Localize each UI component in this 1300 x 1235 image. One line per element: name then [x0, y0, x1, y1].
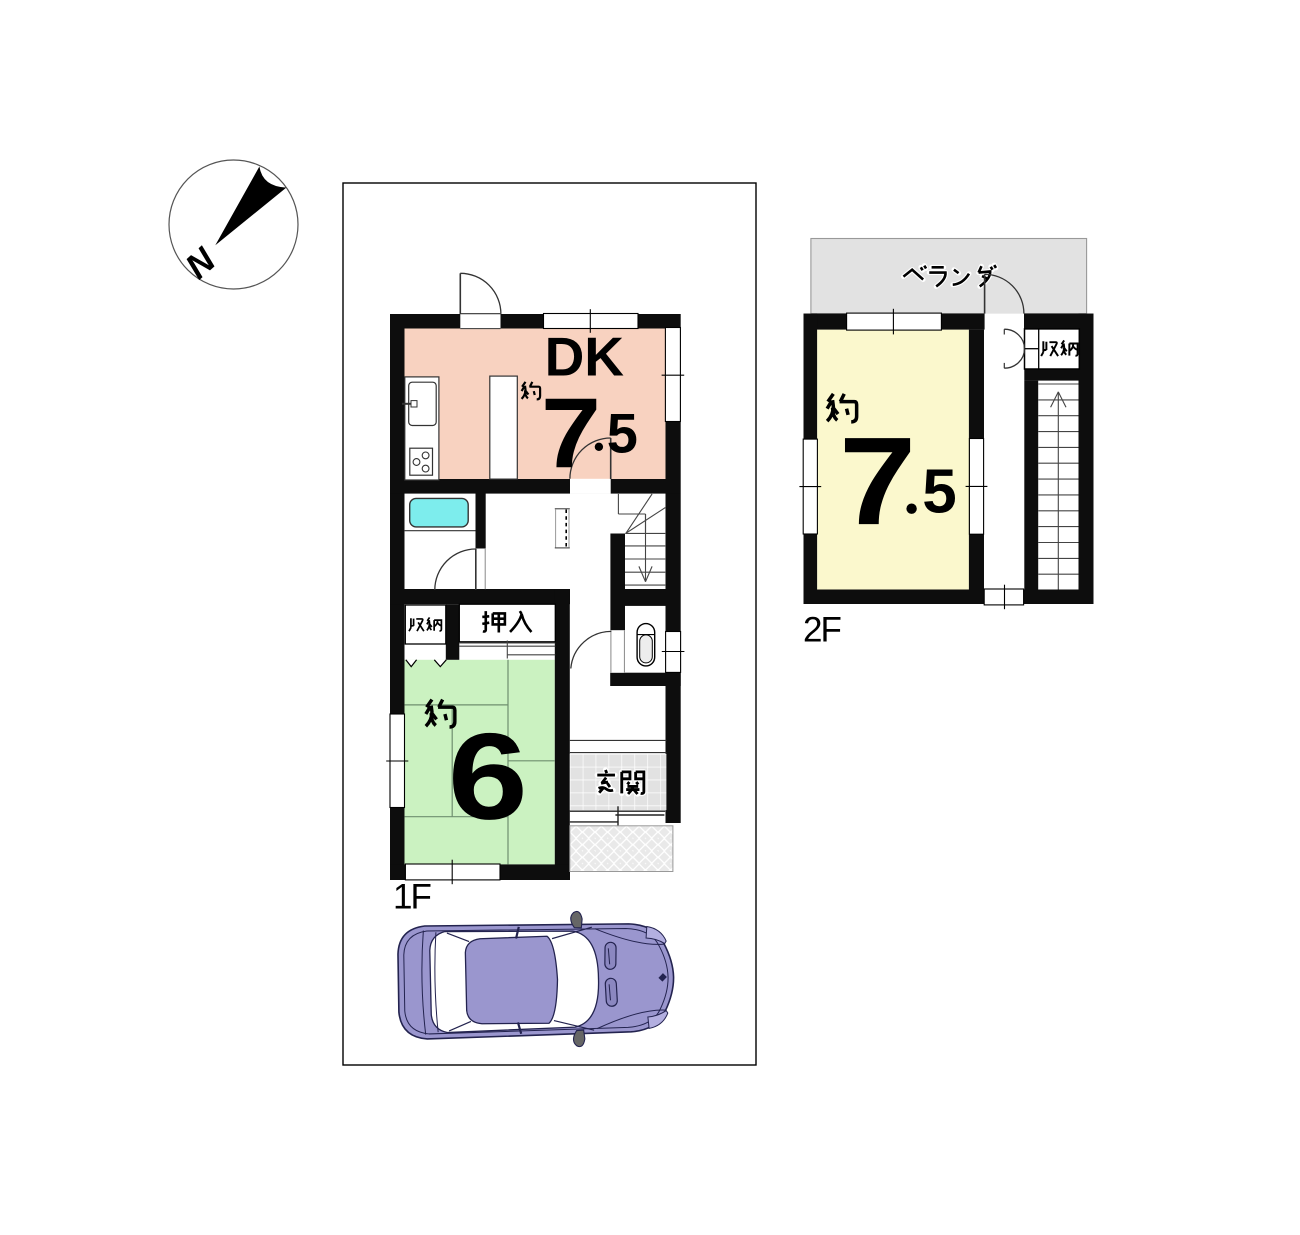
svg-text:5: 5 [607, 402, 638, 465]
svg-text:2F: 2F [803, 611, 840, 650]
svg-text:5: 5 [922, 457, 956, 526]
svg-text:6: 6 [448, 708, 528, 845]
svg-text:7: 7 [839, 411, 916, 551]
svg-text:7: 7 [541, 377, 601, 488]
svg-text:1F: 1F [393, 878, 430, 917]
